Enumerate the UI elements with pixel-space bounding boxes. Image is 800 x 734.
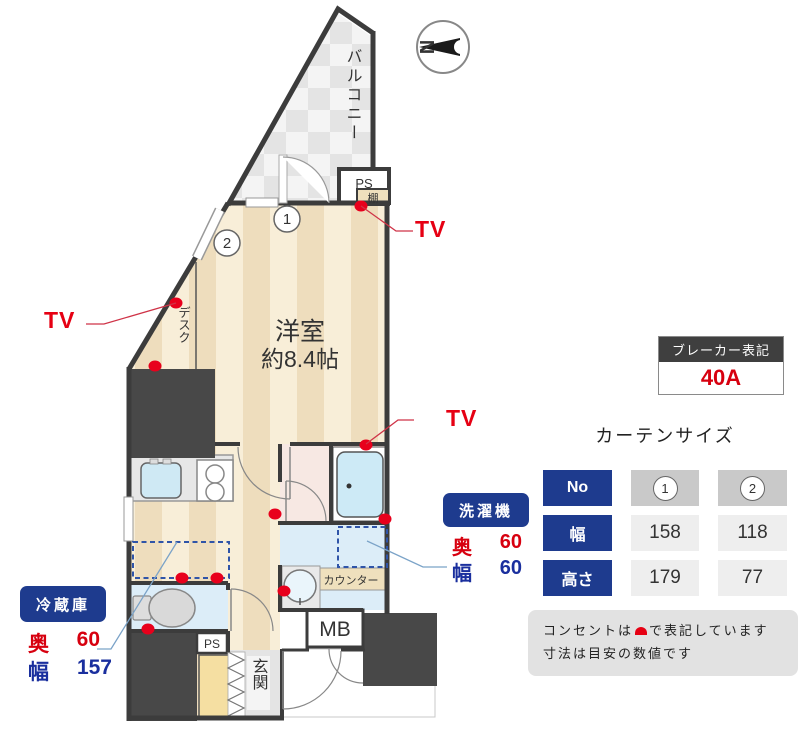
svg-text:2: 2	[223, 235, 231, 252]
compass: N	[415, 21, 469, 73]
fridge-width-value: 157	[77, 656, 112, 686]
curtain-row-width: 幅	[543, 515, 612, 551]
compass-n: N	[415, 40, 437, 54]
washer-depth-label: 奥	[452, 531, 472, 560]
breaker-box: ブレーカー表記 40A	[658, 336, 784, 395]
curtain-col1-header: 1	[631, 470, 699, 506]
washer-depth-value: 60	[500, 531, 522, 560]
shelf-label: 棚	[368, 191, 379, 205]
folding-door-bg	[228, 652, 245, 716]
fridge-depth-label: 奥	[28, 628, 49, 658]
washer-width-value: 60	[500, 557, 522, 586]
circled-2: 2	[740, 476, 765, 501]
curtain-mark-2: 2	[214, 230, 240, 256]
window-left	[124, 497, 133, 541]
shoe-cabinet	[199, 655, 229, 717]
ps-top-label: PS	[355, 176, 373, 191]
curtain-row-no: No	[543, 470, 612, 506]
fridge-depth-value: 60	[77, 628, 100, 658]
curtain-table-title: カーテンサイズ	[543, 422, 787, 448]
room-name: 洋室	[275, 318, 325, 346]
curtain-col2-header: 2	[718, 470, 787, 506]
fridge-width-label: 幅	[28, 656, 49, 686]
outlet-icon	[635, 627, 647, 635]
window-top	[246, 198, 278, 207]
entrance-label: 玄関	[250, 658, 269, 691]
curtain-width-1: 158	[631, 515, 699, 551]
breaker-value: 40A	[659, 362, 783, 394]
pillar	[363, 613, 437, 686]
ps-bottom-label: PS	[204, 637, 220, 651]
sink-tap	[163, 459, 171, 464]
curtain-height-1: 179	[631, 560, 699, 596]
bathtub-drain	[347, 484, 352, 489]
fridge-depth: 奥 60	[28, 628, 100, 658]
tv-label-mid: TV	[446, 405, 477, 432]
stove-burner	[206, 483, 224, 501]
pillar	[127, 369, 215, 458]
washer-label: 洗濯機	[443, 493, 529, 527]
room-size: 約8.4帖	[261, 346, 339, 372]
toilet-bowl	[149, 589, 195, 627]
tv-label-left: TV	[44, 307, 75, 334]
curtain-table: No 1 2 幅 158 118 高さ 179 77	[543, 470, 787, 596]
washer-depth: 奥 60	[452, 531, 522, 560]
balcony-label: バルコニー	[344, 48, 362, 143]
pillar	[127, 632, 197, 721]
washer-width-label: 幅	[452, 557, 472, 586]
stove-burner	[206, 465, 224, 483]
washer-width: 幅 60	[452, 557, 522, 586]
note-line2: 寸法は目安の数値です	[543, 643, 783, 666]
curtain-row-height: 高さ	[543, 560, 612, 596]
counter-label: カウンター	[324, 574, 379, 587]
legend-note: コンセントはで表記しています 寸法は目安の数値です	[528, 610, 798, 676]
svg-text:1: 1	[283, 211, 291, 228]
balcony-door-leaf	[279, 155, 287, 203]
wash-basin	[284, 570, 316, 602]
breaker-title: ブレーカー表記	[659, 337, 783, 362]
tv-label-topright: TV	[415, 216, 446, 243]
circled-1: 1	[653, 476, 678, 501]
bathtub	[337, 452, 383, 517]
fridge-label: 冷蔵庫	[20, 586, 106, 622]
curtain-width-2: 118	[718, 515, 787, 551]
curtain-height-2: 77	[718, 560, 787, 596]
mb-label: MB	[319, 618, 351, 641]
floorplan-page: N 1 2 バルコニー 洋室 約8.4帖 デスク PS 棚 PS 玄関 カウンタ…	[0, 0, 800, 734]
note-line1: コンセントはで表記しています	[543, 620, 783, 643]
curtain-mark-1: 1	[274, 206, 300, 232]
kitchen-sink	[141, 463, 181, 498]
fridge-width: 幅 157	[28, 656, 112, 686]
sink-tap	[150, 459, 158, 464]
desk-label: デスク	[176, 306, 190, 344]
